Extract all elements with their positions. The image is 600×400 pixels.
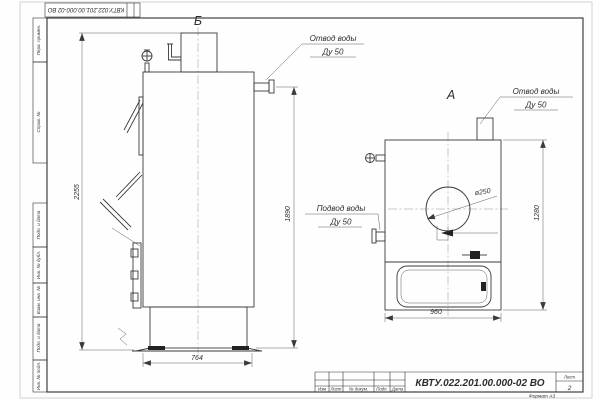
margin-box-label: Инв. № дубл. <box>36 251 41 279</box>
titleblock-column: Подп. <box>376 387 387 392</box>
margin-box-label: Справ. № <box>36 112 41 133</box>
dimension-value: 1280 <box>534 205 541 221</box>
doc-number: КВТУ.022.201.00.000-02 ВО <box>415 378 544 389</box>
view-label-b: Б <box>194 14 202 28</box>
margin-box-label: Подп. и дата <box>36 323 41 352</box>
view-label-a: А <box>446 88 455 102</box>
dimension-value: 764 <box>191 355 203 362</box>
titleblock-column: Лист <box>329 387 341 392</box>
callout-text: Ду 50 <box>322 48 344 57</box>
titleblock-column: Изм <box>318 387 326 392</box>
dimension-value: 960 <box>430 309 442 316</box>
stamp-doc-number: КВТУ.022.201.00.000-02 ВО <box>47 6 124 12</box>
callout-text: Отвод воды <box>513 87 560 96</box>
drawing-sheet: КВТУ.022.201.00.000-02 ВО Перв. примен. … <box>0 0 600 400</box>
sheet-frame <box>20 2 592 398</box>
sheet-number: 2 <box>567 385 572 392</box>
format-label: Формат А3 <box>529 394 556 400</box>
margin-box-label: Перв. примен. <box>36 25 41 56</box>
dimension-value: 1890 <box>285 206 292 222</box>
margin-box-label: Инв. № подл. <box>36 362 41 391</box>
margin-box-label: Подп. и дата <box>36 210 41 239</box>
titleblock-column: Дата <box>391 387 404 392</box>
margin-box-label: Взам. инв. № <box>36 286 41 314</box>
dimension-value: 2255 <box>74 184 81 201</box>
callout-text: Отвод воды <box>310 34 357 43</box>
callout-text: Ду 50 <box>525 101 547 110</box>
titleblock-column: № докум. <box>349 387 368 392</box>
drawing-canvas: КВТУ.022.201.00.000-02 ВО Перв. примен. … <box>0 0 600 400</box>
callout-text: Подвод воды <box>317 204 366 213</box>
callout-text: Ду 50 <box>330 218 352 227</box>
sheet-label: Лист <box>563 375 575 380</box>
